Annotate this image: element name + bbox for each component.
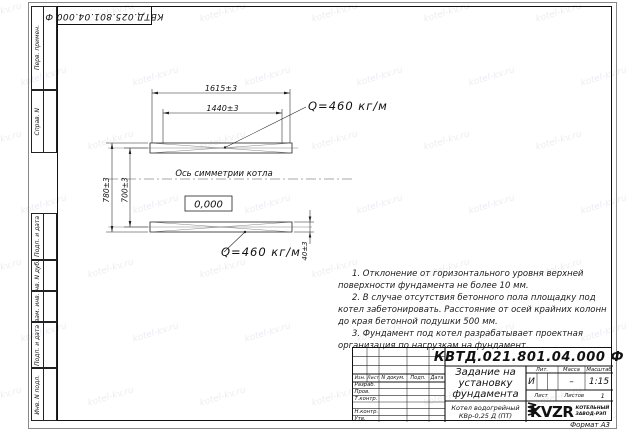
sheets-value: 1 xyxy=(601,392,605,400)
row-label-razrab: Разраб. xyxy=(353,382,379,389)
margin-label-cell: Подп. и дата xyxy=(32,214,44,259)
col-header-data: Дата xyxy=(429,374,445,382)
scale-header: Масштаб xyxy=(585,366,613,373)
scale-value: 1:15 xyxy=(585,373,613,390)
dim-width-outer: 1615±3 xyxy=(205,84,237,93)
company-sub-line: ЗАВОД-РЭП xyxy=(575,412,609,417)
sheets-cell: Листов 1 xyxy=(556,390,613,401)
margin-label-cell: Перв. примен. xyxy=(32,7,44,89)
margin-block-inv-dubl: Инв. N дубл. xyxy=(31,260,57,291)
dim-width-inner: 1440±3 xyxy=(206,104,238,113)
margin-block-podp-data-2: Подп. и дата xyxy=(31,322,57,368)
margin-label-cell: Справ. N xyxy=(32,91,44,152)
mass-value: – xyxy=(558,373,585,390)
drawing-sheet: kotel-kv.rukotel-kv.rukotel-kv.rukotel-k… xyxy=(0,0,644,430)
title-line: фундамента xyxy=(452,389,518,400)
margin-block-inv-podl: Инв. N подл. xyxy=(31,368,57,421)
product-line: КВр-0,25 Д (ПТ) xyxy=(459,412,512,420)
note-item-2: 2. В случае отсутствия бетонного пола пл… xyxy=(338,292,615,328)
corner-doc-number: КВТД.025.801.04.000 Ф xyxy=(45,11,164,21)
lit-header: Лит. xyxy=(526,366,558,373)
corner-doc-number-box: КВТД.025.801.04.000 Ф xyxy=(57,6,152,25)
margin-label: Подп. и дата xyxy=(34,325,41,366)
col-header-podp: Подп. xyxy=(407,374,429,382)
product-line: Котел водогрейный xyxy=(451,404,519,412)
kvzr-logo-icon xyxy=(526,401,538,417)
margin-label-cell: Подп. и дата xyxy=(32,323,44,367)
title-line: установку xyxy=(459,378,513,389)
dim-height-inner: 700±3 xyxy=(121,177,130,203)
product-name: Котел водогрейный КВр-0,25 Д (ПТ) xyxy=(445,401,526,422)
level-mark-value: 0,000 xyxy=(194,200,223,211)
margin-label: Справ. N xyxy=(34,108,41,135)
col-header-izm: Изм. xyxy=(353,374,367,382)
margin-blank-cell xyxy=(44,292,56,321)
row-label-t-contr: Т.контр. xyxy=(353,395,379,402)
title-block-name: Задание на установку фундамента xyxy=(445,366,526,401)
margin-label: Взам. инв. N xyxy=(34,292,41,321)
lit-value: И xyxy=(526,373,537,390)
mass-header: Масса xyxy=(558,366,585,373)
beam-cross-lines xyxy=(108,143,312,232)
margin-blank-cell xyxy=(44,369,56,420)
sheet-label: Лист xyxy=(526,390,556,401)
col-header-list: Лист xyxy=(367,374,379,382)
dim-channel-height: 40±3 xyxy=(301,241,309,260)
margin-label: Подп. и дата xyxy=(34,216,41,257)
title-line: Задание на xyxy=(455,367,516,378)
dim-height-outer: 780±3 xyxy=(102,177,111,203)
dimension-arrows xyxy=(111,92,312,238)
margin-label-cell: Взам. инв. N xyxy=(32,292,44,321)
title-block-doc-number: КВТД.021.801.04.000 Ф xyxy=(445,348,613,366)
margin-label: Инв. N дубл. xyxy=(34,261,41,290)
foundation-drawing: 1615±3 1440±3 Q=460 кг/м Ось симметрии к… xyxy=(100,83,400,263)
row-label-utv: Утв. xyxy=(353,415,379,422)
company-logo: KVZR КОТЕЛЬНЫЙ ЗАВОД-РЭП xyxy=(526,401,613,422)
col-header-n-dokum: N докум. xyxy=(379,374,407,382)
margin-blank-cell xyxy=(44,91,56,152)
margin-block-perv-primen: Перв. примен. xyxy=(31,6,57,90)
load-label-top: Q=460 кг/м xyxy=(308,99,388,113)
company-subtitle: КОТЕЛЬНЫЙ ЗАВОД-РЭП xyxy=(575,406,609,417)
margin-label-cell: Инв. N дубл. xyxy=(32,261,44,290)
margin-blank-cell xyxy=(44,7,56,89)
margin-label: Перв. примен. xyxy=(34,25,41,70)
margin-blank-cell xyxy=(44,261,56,290)
symmetry-axis-label: Ось симметрии котла xyxy=(175,169,272,179)
notes-block: 1. Отклонение от горизонтального уровня … xyxy=(338,268,615,352)
margin-block-sprav-n: Справ. N xyxy=(31,90,57,153)
load-label-bottom: Q=460 кг/м xyxy=(221,245,301,259)
margin-blank-cell xyxy=(44,214,56,259)
note-item-1: 1. Отклонение от горизонтального уровня … xyxy=(338,268,615,292)
margin-block-vzam-inv: Взам. инв. N xyxy=(31,291,57,322)
margin-block-podp-data-1: Подп. и дата xyxy=(31,213,57,260)
format-label: Формат А3 xyxy=(560,421,620,430)
title-block: КВТД.021.801.04.000 Ф Изм. Лист N докум.… xyxy=(352,347,612,421)
margin-label-cell: Инв. N подл. xyxy=(32,369,44,420)
margin-blank-cell xyxy=(44,323,56,367)
sheets-label: Листов xyxy=(564,393,584,399)
margin-label: Инв. N подл. xyxy=(34,375,41,415)
